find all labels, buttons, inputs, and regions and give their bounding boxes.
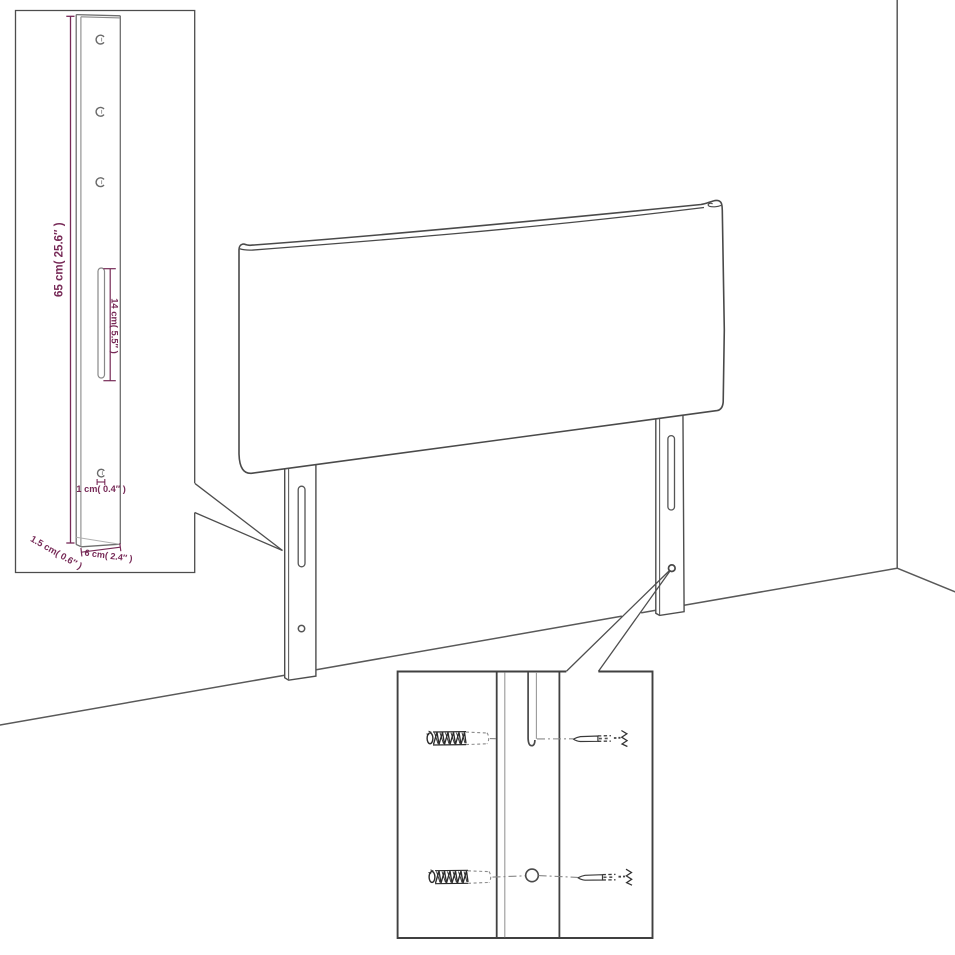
- svg-text:1 cm( 0.4″ ): 1 cm( 0.4″ ): [76, 484, 125, 494]
- svg-text:65 cm( 25.6″ ): 65 cm( 25.6″ ): [53, 222, 65, 297]
- svg-text:14 cm( 5.5″ ): 14 cm( 5.5″ ): [110, 298, 121, 354]
